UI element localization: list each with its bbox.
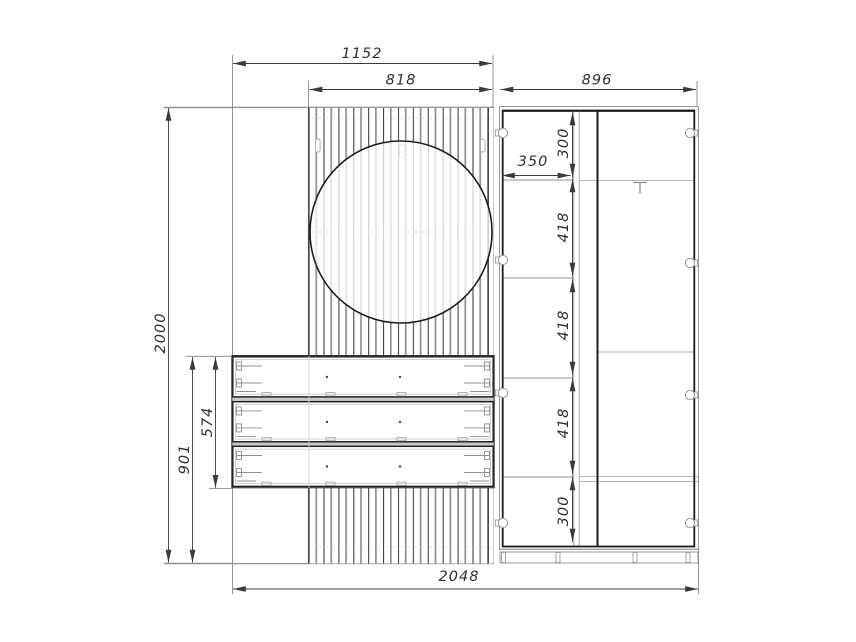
- drawer-2: [233, 402, 493, 442]
- hinge-icon: [495, 388, 507, 397]
- plinth: [500, 552, 698, 563]
- hinge-icon: [685, 390, 697, 399]
- dim-label-total-height: 2000: [153, 313, 169, 354]
- wardrobe-carcass: [500, 107, 699, 550]
- drawer-block: [232, 356, 494, 488]
- drawer-3: [233, 446, 493, 486]
- hinge-icon: [495, 518, 507, 527]
- dim-label-compartment-top: 300: [556, 128, 572, 159]
- foot: [686, 553, 690, 563]
- mirror-panel-unit: [164, 108, 494, 564]
- dim-label-compartment-bottom: 300: [556, 496, 572, 527]
- hinge-icon: [495, 128, 507, 137]
- hinge-icon: [495, 255, 507, 264]
- drawing-canvas: 1152 818 896 2000 901 574 350 300 418 41…: [0, 0, 856, 642]
- foot: [502, 553, 506, 563]
- dim-label-shelf-width: 350: [518, 154, 549, 170]
- furniture-elevation-drawing: 1152 818 896 2000 901 574 350 300 418 41…: [0, 0, 856, 642]
- hinge-icon: [685, 128, 697, 137]
- dim-label-compartment-mid-a: 418: [556, 212, 572, 243]
- wardrobe-unit: [495, 107, 698, 564]
- dim-label-slat-panel-width: 818: [386, 73, 417, 89]
- dim-label-panel-width: 1152: [342, 46, 383, 62]
- dim-label-compartment-mid-b: 418: [556, 310, 572, 341]
- drawer-1: [233, 357, 493, 397]
- foot: [633, 553, 637, 563]
- hinge-icon: [685, 258, 697, 267]
- dim-label-drawer-block-height: 574: [200, 407, 216, 438]
- dim-label-drawer-section-height: 901: [177, 444, 193, 475]
- dim-label-compartment-mid-c: 418: [556, 408, 572, 439]
- dim-label-total-width: 2048: [439, 569, 480, 585]
- dim-label-wardrobe-width: 896: [582, 73, 613, 89]
- hinge-icon: [685, 518, 697, 527]
- foot: [556, 553, 560, 563]
